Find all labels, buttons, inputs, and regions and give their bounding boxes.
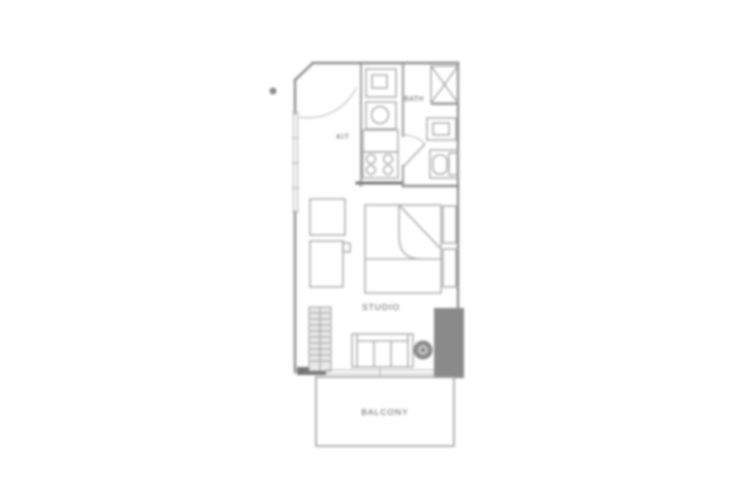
vent-block xyxy=(309,307,331,371)
floorplan-svg: KIT BATH STUDIO BALCONY xyxy=(0,0,750,500)
toilet xyxy=(430,150,458,178)
bath-vanity xyxy=(427,118,456,140)
floorplan: KIT BATH STUDIO BALCONY xyxy=(0,0,750,500)
entry-door-arc xyxy=(299,88,356,118)
shower xyxy=(431,66,458,103)
balcony-label: BALCONY xyxy=(361,407,409,417)
left-window xyxy=(292,113,299,212)
bath-label: BATH xyxy=(404,96,424,103)
closet xyxy=(310,199,350,287)
kitchen-sink xyxy=(366,102,396,129)
stove xyxy=(363,152,398,178)
bed xyxy=(365,205,441,293)
column-block xyxy=(434,308,464,378)
nightstand-shelf xyxy=(443,206,456,287)
balcony-sliding-door xyxy=(326,367,434,377)
floorplan-canvas: KIT BATH STUDIO BALCONY xyxy=(0,0,750,500)
coffee-table xyxy=(414,341,433,360)
kitchen-label: KIT xyxy=(336,132,349,141)
bath-door xyxy=(404,135,425,166)
plan-marker-dot xyxy=(270,88,277,95)
washer xyxy=(366,69,396,97)
studio-label: STUDIO xyxy=(362,302,400,312)
sofa xyxy=(352,334,413,367)
